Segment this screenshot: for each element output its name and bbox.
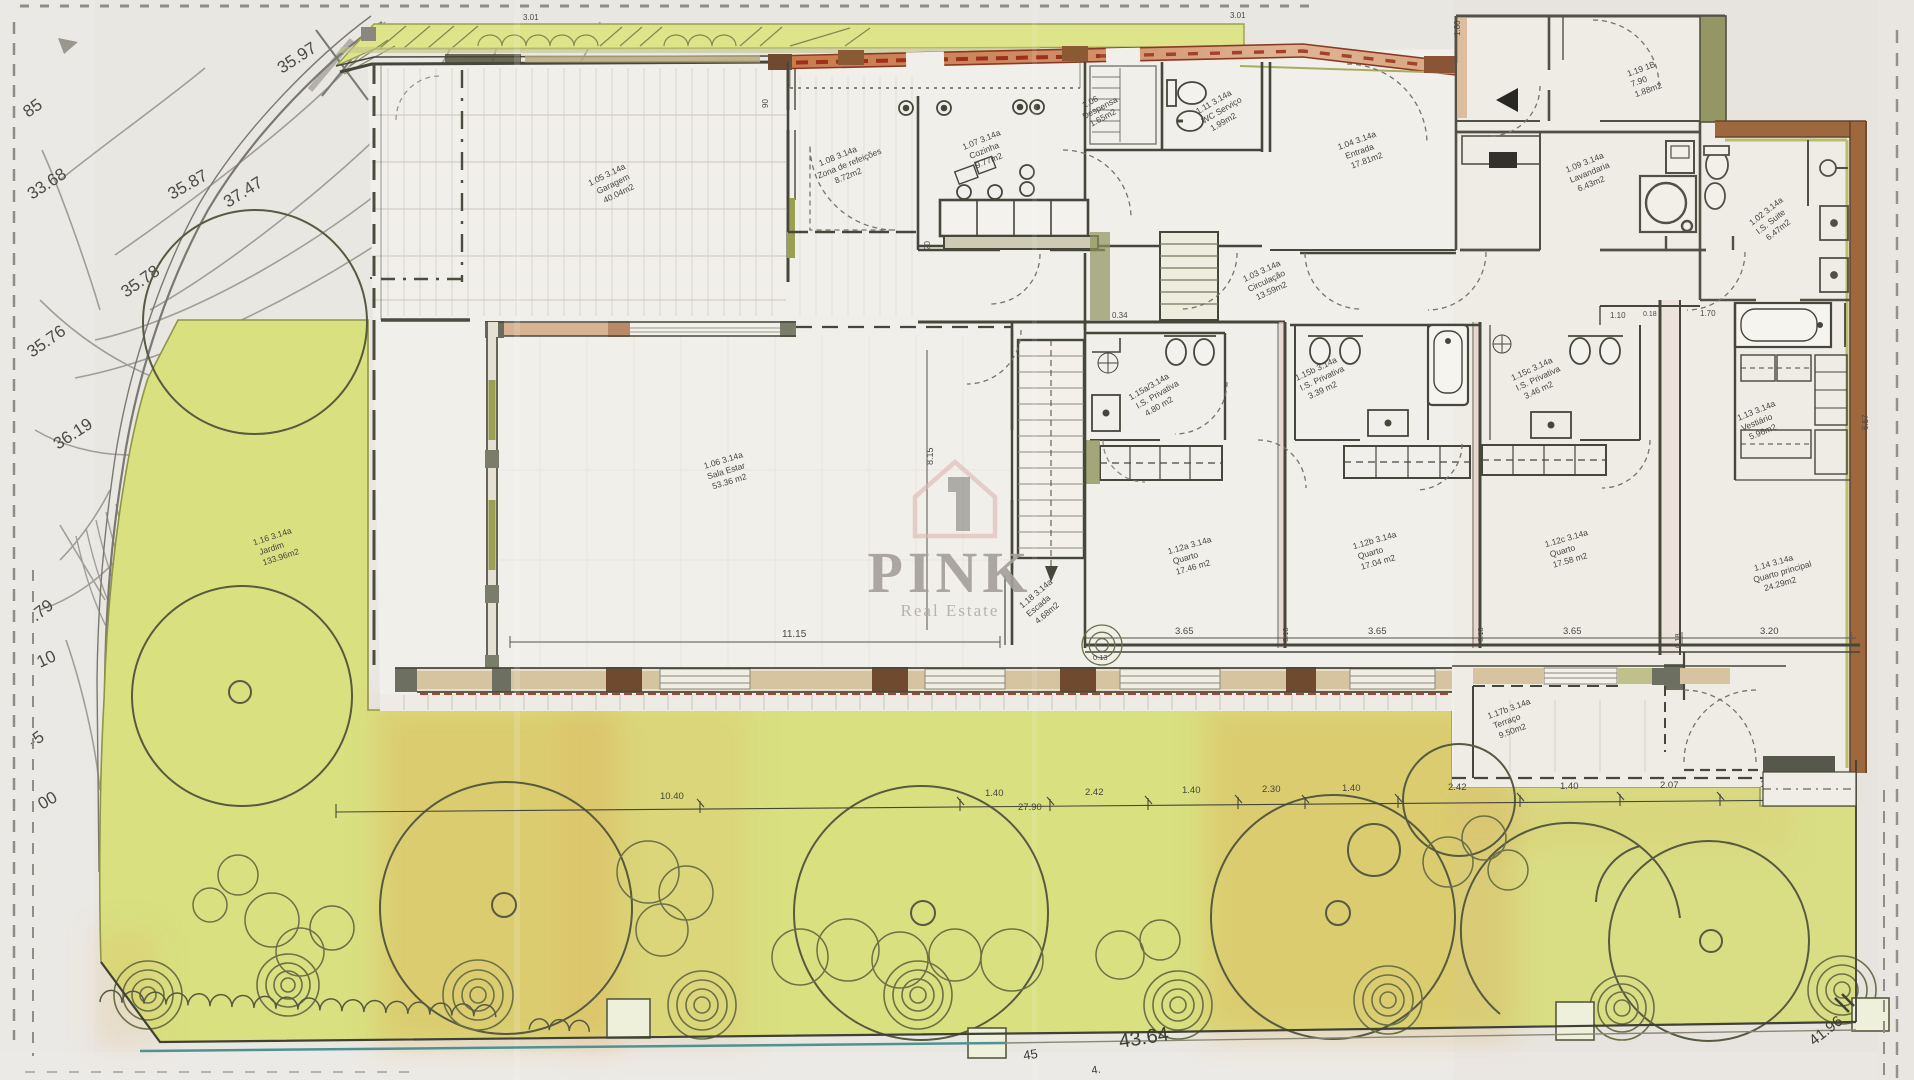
svg-text:27.90: 27.90 xyxy=(1018,802,1042,813)
svg-text:3.20: 3.20 xyxy=(1760,626,1779,637)
svg-text:90: 90 xyxy=(761,99,770,108)
svg-text:3.65: 3.65 xyxy=(1368,626,1387,637)
svg-text:3.65: 3.65 xyxy=(1175,626,1194,637)
svg-text:0.18: 0.18 xyxy=(1673,633,1682,648)
svg-text:0.18: 0.18 xyxy=(1281,627,1290,642)
svg-text:3.01: 3.01 xyxy=(523,13,539,22)
svg-text:2.30: 2.30 xyxy=(1262,784,1281,795)
svg-text:1.80: 1.80 xyxy=(1453,20,1462,36)
svg-text:6.57: 6.57 xyxy=(1861,414,1870,430)
svg-text:1.40: 1.40 xyxy=(1342,783,1361,794)
svg-text:0.13: 0.13 xyxy=(1093,653,1108,662)
svg-text:4.: 4. xyxy=(1091,1064,1102,1077)
svg-text:10.40: 10.40 xyxy=(660,791,684,802)
svg-text:1.40: 1.40 xyxy=(1182,785,1201,796)
svg-text:1.10: 1.10 xyxy=(1610,311,1626,320)
svg-text:PINK: PINK xyxy=(868,540,1033,605)
svg-text:1.40: 1.40 xyxy=(1560,781,1579,792)
svg-text:0.18: 0.18 xyxy=(1476,627,1485,642)
svg-text:1.40: 1.40 xyxy=(985,788,1004,799)
svg-text:2.42: 2.42 xyxy=(1448,782,1467,793)
svg-text:3.01: 3.01 xyxy=(1230,11,1246,20)
svg-text:0.34: 0.34 xyxy=(1112,311,1128,320)
svg-text:Real Estate: Real Estate xyxy=(901,601,1000,620)
svg-text:1.70: 1.70 xyxy=(1700,309,1716,318)
svg-text:11.15: 11.15 xyxy=(782,629,807,640)
svg-text:8.15: 8.15 xyxy=(925,447,935,465)
svg-text:2.07: 2.07 xyxy=(1660,780,1679,791)
svg-text:0.18: 0.18 xyxy=(1643,311,1657,318)
svg-text:45: 45 xyxy=(1022,1046,1039,1063)
svg-text:20: 20 xyxy=(923,241,932,250)
svg-text:2.42: 2.42 xyxy=(1085,787,1104,798)
svg-text:3.65: 3.65 xyxy=(1563,626,1582,637)
